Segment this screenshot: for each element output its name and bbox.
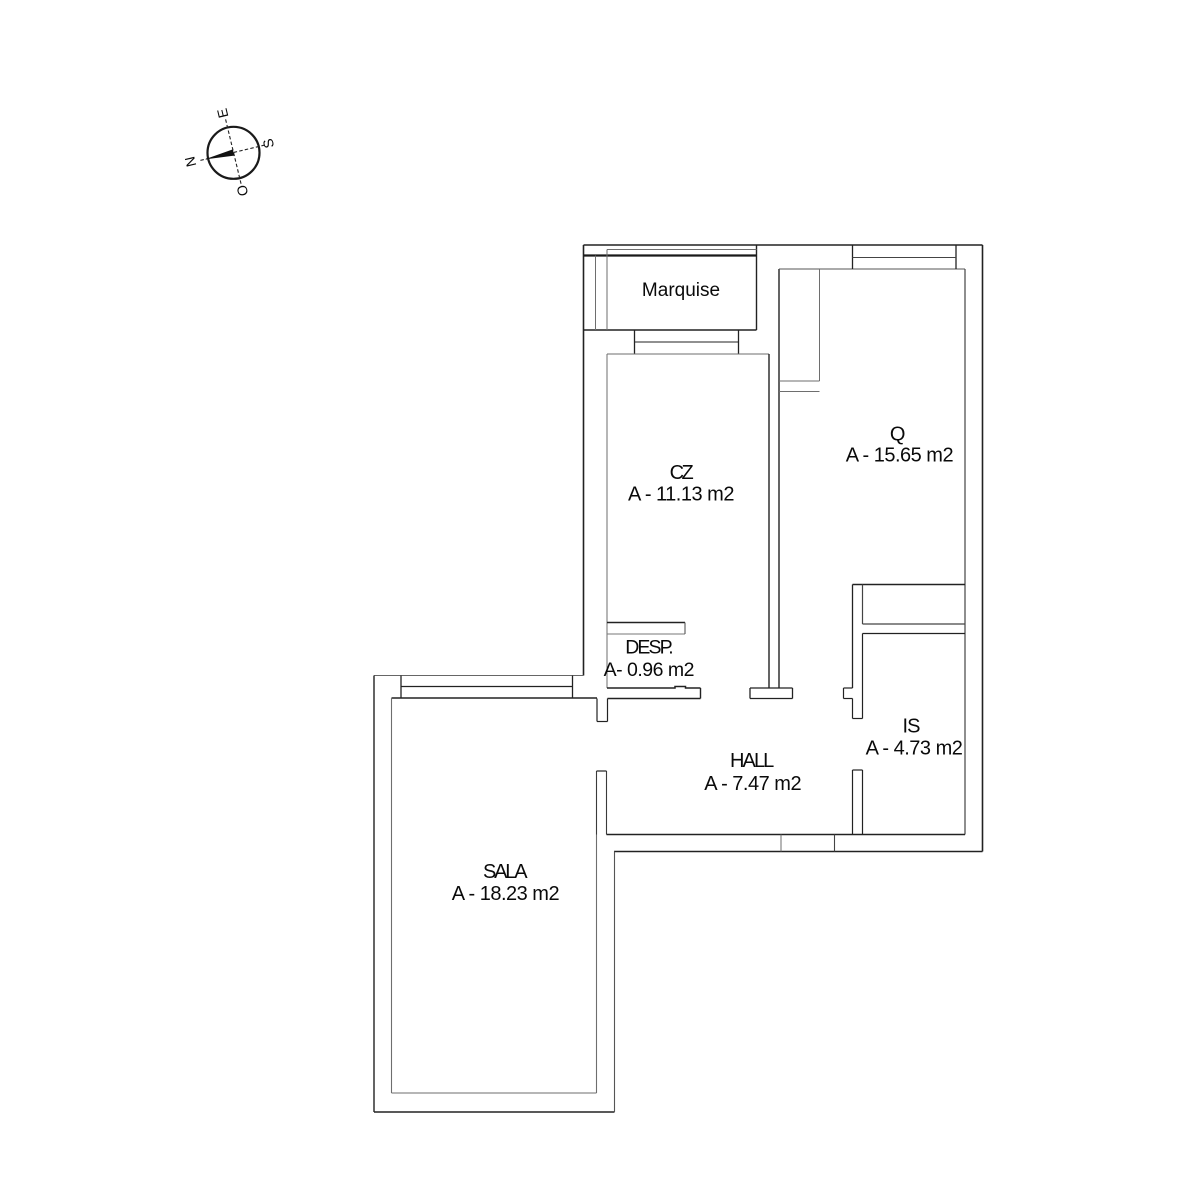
svg-text:A - 18.23 m2: A - 18.23 m2 bbox=[452, 883, 560, 905]
svg-text:A - 15.65 m2: A - 15.65 m2 bbox=[846, 444, 954, 466]
svg-text:A- 0.96 m2: A- 0.96 m2 bbox=[604, 659, 694, 681]
svg-text:CZ: CZ bbox=[670, 462, 694, 484]
svg-text:O: O bbox=[233, 183, 251, 197]
svg-text:IS: IS bbox=[903, 715, 921, 737]
svg-text:DESP.: DESP. bbox=[625, 637, 672, 659]
svg-text:S: S bbox=[259, 137, 277, 150]
svg-text:A - 11.13 m2: A - 11.13 m2 bbox=[628, 484, 734, 506]
svg-text:Q: Q bbox=[890, 423, 906, 445]
svg-text:A - 7.47 m2: A - 7.47 m2 bbox=[704, 773, 801, 795]
svg-text:Marquise: Marquise bbox=[642, 280, 720, 301]
svg-text:E: E bbox=[214, 107, 232, 120]
svg-text:HALL: HALL bbox=[730, 750, 774, 772]
svg-text:N: N bbox=[181, 155, 199, 169]
svg-text:A - 4.73 m2: A - 4.73 m2 bbox=[866, 737, 963, 759]
svg-text:SALA: SALA bbox=[483, 861, 528, 883]
